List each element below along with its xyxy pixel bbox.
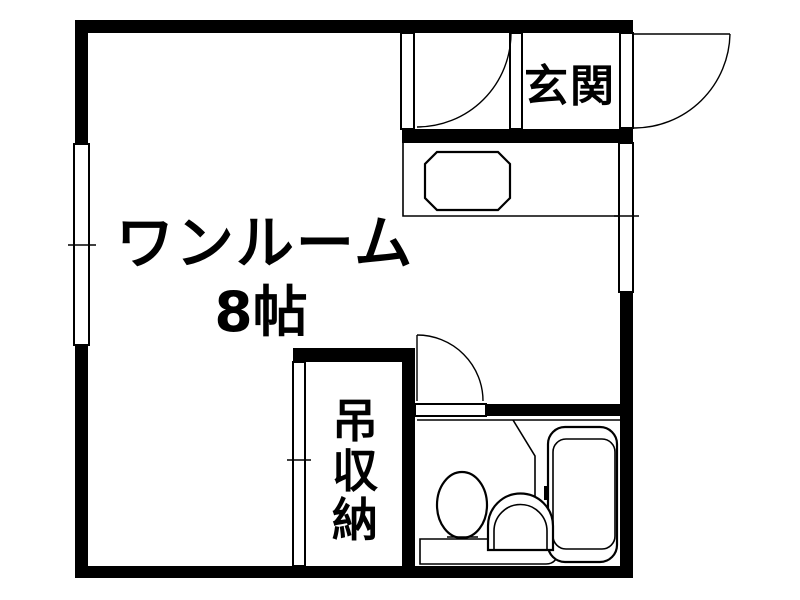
bathroom-door-leaf bbox=[415, 404, 486, 416]
bathroom bbox=[417, 420, 620, 564]
kitchenette bbox=[403, 143, 619, 216]
wall-right-lower bbox=[620, 292, 633, 578]
storage-label-char-2: 収 bbox=[332, 444, 378, 498]
wall-bathroom-top bbox=[486, 404, 633, 416]
storage-label-char-3: 納 bbox=[332, 493, 378, 547]
wall-left-upper bbox=[75, 20, 88, 144]
toilet-bowl bbox=[437, 472, 487, 538]
main-room-size-label: 8帖 bbox=[214, 280, 307, 344]
storage-label: 吊 収 納 bbox=[332, 394, 378, 547]
entrance-door-opening bbox=[620, 33, 633, 128]
floorplan-page: ワンルーム 8帖 玄関 吊 収 納 bbox=[0, 0, 800, 600]
wall-storage-right bbox=[402, 348, 415, 578]
bathtub-outer bbox=[548, 427, 617, 562]
storage-partition bbox=[293, 362, 305, 566]
partition-room-corridor bbox=[401, 33, 414, 129]
wall-storage-top bbox=[293, 348, 413, 362]
wall-left-lower bbox=[75, 345, 88, 578]
entrance-label: 玄関 bbox=[524, 61, 616, 112]
bathroom-door-swing-arc bbox=[417, 335, 483, 401]
storage-label-char-1: 吊 bbox=[332, 394, 378, 448]
window-right bbox=[619, 143, 633, 292]
floorplan-drawing: ワンルーム 8帖 玄関 吊 収 納 bbox=[0, 0, 800, 600]
bathtub-faucet-mark bbox=[544, 486, 549, 500]
wall-top bbox=[75, 20, 633, 33]
kitchen-sink bbox=[425, 152, 510, 210]
wash-basin-outer bbox=[488, 494, 553, 550]
main-room-name-label: ワンルーム bbox=[116, 209, 414, 277]
partition-corridor-genkan bbox=[510, 33, 522, 129]
wall-entrance-corridor bbox=[402, 129, 633, 143]
wall-bottom bbox=[75, 566, 633, 578]
entrance-door-swing-arc bbox=[634, 34, 730, 128]
room-door-swing-arc bbox=[417, 33, 511, 127]
